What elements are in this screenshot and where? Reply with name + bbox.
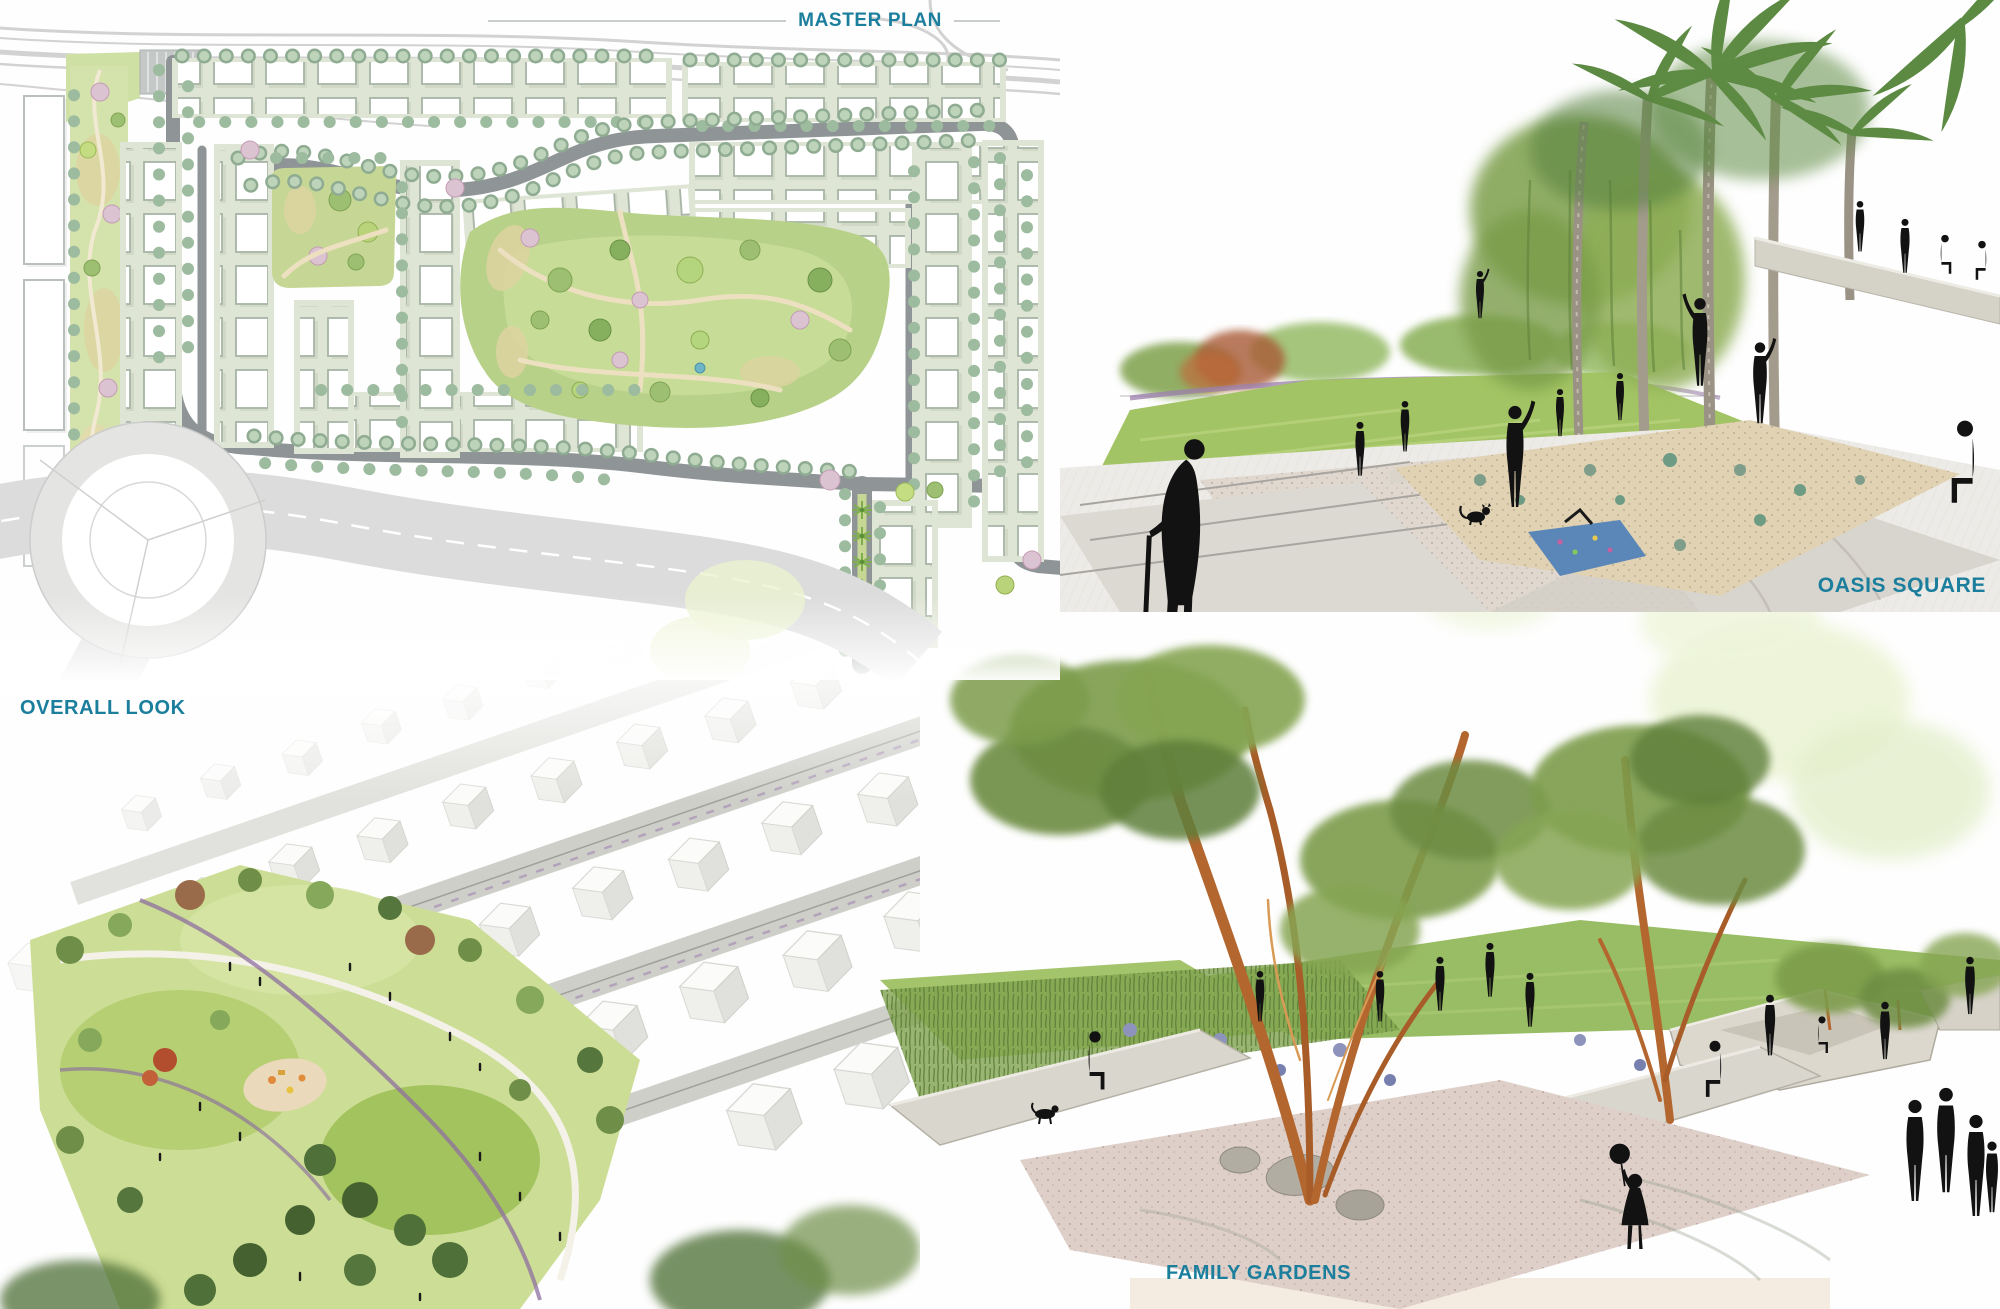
family-gardens-title: FAMILY GARDENS <box>1166 1262 1351 1284</box>
oasis-square-caption: OASIS SQUARE <box>1818 574 1986 598</box>
caption-rule <box>954 20 1000 22</box>
central-park <box>460 208 889 428</box>
housing-column <box>912 142 972 528</box>
housing-column <box>982 140 1044 562</box>
overall-look-caption: OVERALL LOOK <box>20 697 186 720</box>
overall-look-illustration <box>0 640 920 1309</box>
master-plan-caption: MASTER PLAN <box>488 10 1000 32</box>
oasis-square-title: OASIS SQUARE <box>1818 574 1986 597</box>
housing-row <box>172 58 672 118</box>
caption-rule <box>488 20 786 22</box>
housing-column <box>214 144 274 448</box>
housing-column <box>294 300 354 454</box>
family-gardens-caption: FAMILY GARDENS <box>1166 1262 1351 1285</box>
gravel-court <box>1020 1080 1870 1309</box>
master-plan-illustration: .tr1{stroke:#8fac92;stroke-width:15;stro… <box>0 0 1060 680</box>
presentation-board: .tr1{stroke:#8fac92;stroke-width:15;stro… <box>0 0 2000 1309</box>
master-plan-title: MASTER PLAN <box>798 10 942 32</box>
overall-look-title: OVERALL LOOK <box>20 697 186 719</box>
oasis-square-illustration <box>1060 0 2000 612</box>
housing-column <box>120 142 182 458</box>
neighborhood-park <box>30 865 640 1309</box>
